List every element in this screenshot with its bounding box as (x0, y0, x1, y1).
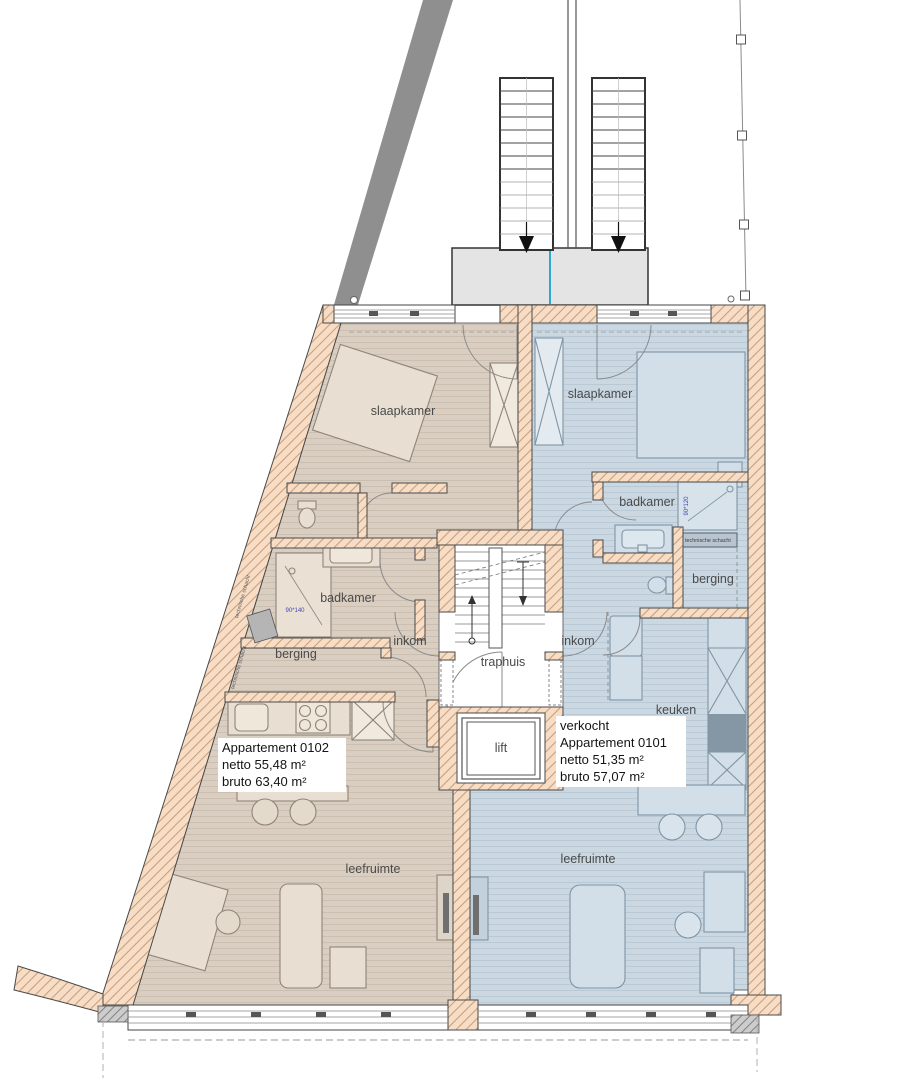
desk-right (704, 872, 745, 932)
core-wall-left-upper (439, 545, 455, 612)
apartment-0102-title: Appartement 0102 (222, 740, 329, 755)
wall-l-slaapkamer-b (392, 483, 447, 493)
room-label-berging-right: berging (692, 572, 734, 586)
traphuis-interior (441, 548, 561, 705)
chair-left-2 (290, 799, 316, 825)
toilet-left (298, 501, 316, 528)
chair-right-2 (696, 814, 722, 840)
core-wall-left-stub (439, 652, 455, 660)
wall-r-badkamer-bottom (603, 553, 680, 563)
room-label-inkom-left: inkom (393, 634, 426, 648)
kitchen-counter-left (228, 700, 350, 735)
kitchen-sink-left (235, 704, 268, 731)
kitchen-counter-right (708, 610, 746, 790)
room-label-badkamer-right: badkamer (619, 495, 675, 509)
side-table-left (330, 947, 366, 988)
room-label-slaapkamer-right: slaapkamer (568, 387, 633, 401)
window-bottom-right (478, 1005, 748, 1030)
core-wall-right-upper (545, 545, 563, 612)
exterior-stair-right (592, 78, 645, 253)
wall-r-badkamer-left-b (593, 540, 603, 557)
room-label-leefruimte-left: leefruimte (346, 862, 401, 876)
boundary-line (740, 0, 746, 298)
party-wall-top (518, 305, 532, 540)
apartment-0102-bruto: bruto 63,40 m² (222, 774, 307, 789)
room-label-leefruimte-right: leefruimte (561, 852, 616, 866)
room-label-lift: lift (495, 741, 508, 755)
wall-r-berging-bottom (640, 608, 748, 618)
bottom-facade (98, 1005, 759, 1078)
wall-l-kitchen-back (225, 692, 395, 702)
room-label-inkom-right: inkom (561, 634, 594, 648)
apartment-0102-info: Appartement 0102 netto 55,48 m² bruto 63… (218, 738, 346, 792)
wall-right (748, 305, 765, 995)
stair-center-divider (489, 548, 502, 648)
apartment-0101-title: Appartement 0101 (560, 735, 667, 750)
exterior-stair-left (500, 78, 553, 253)
party-wall-bottom (453, 790, 470, 1005)
wall-r-badkamer-left-a (593, 482, 603, 500)
washbasin-right (615, 525, 672, 553)
ramp-end-marker (351, 297, 358, 304)
kitchen-dark-unit (708, 714, 746, 752)
sofa-right (570, 885, 625, 988)
wall-l-badkamer-top (271, 538, 437, 548)
chair-right-1 (659, 814, 685, 840)
wall-l-badkamer-right-a (415, 548, 425, 560)
pier-right (731, 1015, 759, 1033)
sofa-left (280, 884, 322, 988)
bed-right (637, 352, 745, 458)
site-elements (333, 0, 750, 308)
apartment-0102-netto: netto 55,48 m² (222, 757, 306, 772)
cabinet-right (700, 948, 734, 993)
tall-cabinet-left (352, 700, 394, 740)
room-label-traphuis: traphuis (481, 655, 525, 669)
apartment-0101-bruto: bruto 57,07 m² (560, 769, 645, 784)
wall-l-berging-right-a (381, 648, 391, 658)
apartment-0101-status: verkocht (560, 718, 610, 733)
traphuis-open-wall-left (441, 657, 453, 705)
core-top-wall (437, 530, 563, 545)
floor-plan-drawing: slaapkamer slaapkamer badkamer badkamer … (0, 0, 909, 1080)
wall-l-corridor-stub (427, 700, 439, 747)
desk-chair-left (216, 910, 240, 934)
wall-top-core-seg (500, 305, 597, 323)
lounge-chair-right (675, 912, 701, 938)
appliance-right-1 (610, 616, 642, 656)
pier-left (98, 1006, 128, 1022)
apartment-0101-netto: netto 51,35 m² (560, 752, 644, 767)
room-label-berging-left: berging (275, 647, 317, 661)
window-top-right (597, 305, 711, 323)
chair-left-1 (252, 799, 278, 825)
window-bottom-left (128, 1005, 448, 1030)
apartment-0101-info: verkocht Appartement 0101 netto 51,35 m²… (556, 716, 686, 787)
label-technische-schacht: technische schacht (685, 538, 731, 544)
dim-shower-right: 90*120 (684, 496, 690, 516)
wall-l-slaapkamer-a (287, 483, 360, 493)
stair-up-arrow (468, 595, 476, 644)
bottom-party-wall-foot (448, 1000, 478, 1030)
appliance-right-2 (610, 656, 642, 700)
radiator-left (443, 893, 449, 933)
wardrobe-left (490, 363, 518, 447)
radiator-right (473, 895, 479, 935)
floor-plan-page: slaapkamer slaapkamer badkamer badkamer … (0, 0, 909, 1080)
boundary-corner-marker (728, 296, 734, 302)
toilet-right (648, 577, 674, 594)
wardrobe-right (535, 338, 563, 445)
wall-r-schacht-left (673, 527, 683, 610)
window-top-left (334, 305, 455, 323)
core-wall-right-stub (545, 652, 563, 660)
neighbor-wall-band (14, 966, 103, 1013)
room-label-badkamer-left: badkamer (320, 591, 376, 605)
wall-r-badkamer-top (592, 472, 748, 482)
wall-l-wc (358, 493, 367, 545)
room-label-keuken: keuken (656, 703, 696, 717)
traphuis-open-wall-right (549, 657, 561, 705)
dim-shower-left: 90*140 (285, 608, 305, 614)
room-label-slaapkamer-left: slaapkamer (371, 404, 436, 418)
ramp-gray-band (333, 0, 453, 308)
